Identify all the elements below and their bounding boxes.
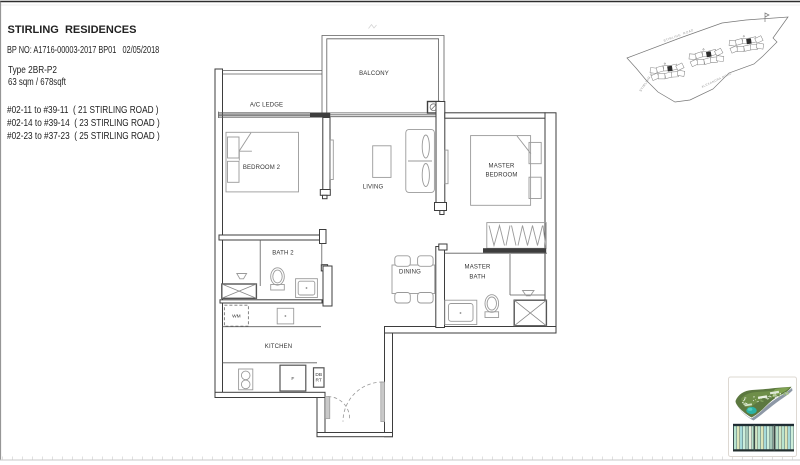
svg-text:BATH: BATH [469,275,485,281]
svg-text:BEDROOM: BEDROOM [485,173,517,179]
svg-text:STIRLING ROAD: STIRLING ROAD [663,28,695,43]
svg-text:DB: DB [315,372,322,378]
svg-text:RT: RT [316,378,322,384]
svg-text:LIVING: LIVING [363,185,384,191]
svg-text:DINING: DINING [399,270,421,276]
svg-text:BALCONY: BALCONY [359,71,389,77]
svg-text:KITCHEN: KITCHEN [265,344,292,350]
svg-text:ALEXANDRA ROAD: ALEXANDRA ROAD [701,71,733,89]
svg-text:A/C LEDGE: A/C LEDGE [250,103,283,109]
svg-text:F: F [291,376,294,382]
svg-text:BEDROOM 2: BEDROOM 2 [243,165,281,171]
svg-text:MASTER: MASTER [489,164,515,170]
svg-text:MASTER: MASTER [465,265,491,271]
svg-text:WM: WM [232,314,241,320]
svg-text:BATH 2: BATH 2 [272,251,294,257]
